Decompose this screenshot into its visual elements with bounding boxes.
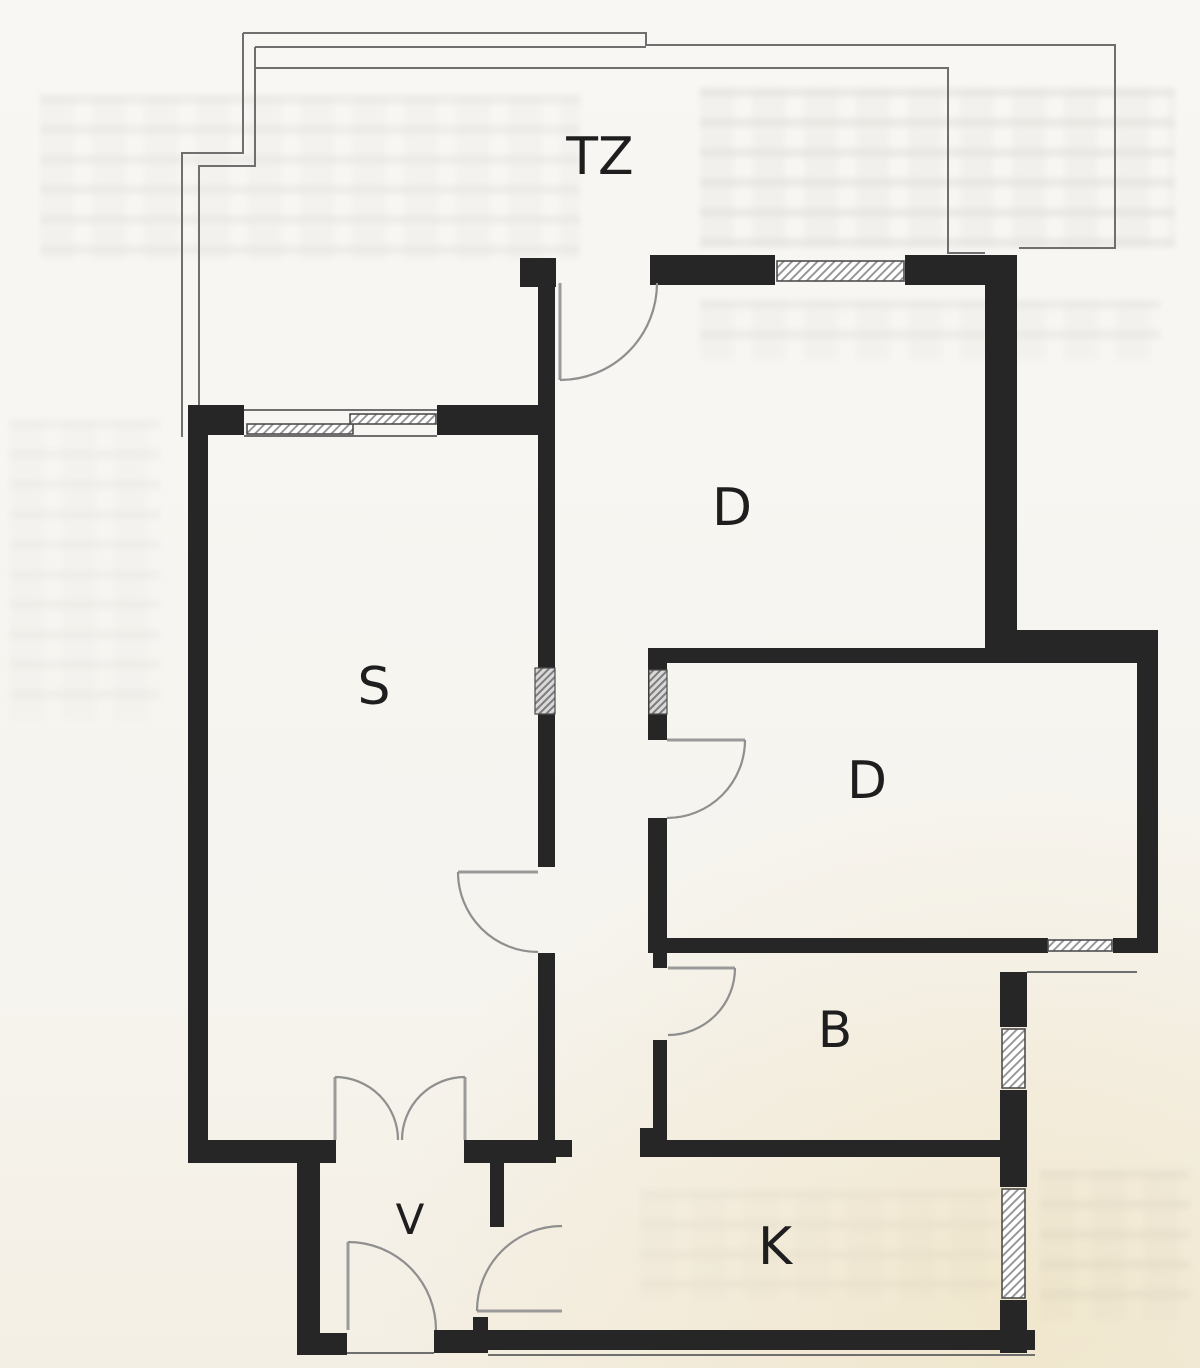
wall-d1-top-left xyxy=(650,255,775,285)
wall-b-k-divider xyxy=(653,1140,1003,1157)
window-s-right-pane xyxy=(350,414,436,424)
door-entry-to-v xyxy=(348,1242,436,1330)
wall-v-bottom-right xyxy=(434,1330,488,1353)
window-d1 xyxy=(777,261,904,281)
room-label-terrace: TZ xyxy=(565,127,633,187)
terrace-outer-line-left xyxy=(182,33,243,437)
wall-d1-right xyxy=(985,255,1017,635)
wall-v-bottom-left xyxy=(297,1333,347,1355)
window-d2 xyxy=(1048,940,1112,951)
floor-plan-drawing: TZ D S D B V K xyxy=(0,0,1200,1368)
wall-d2-left-lower xyxy=(648,818,667,953)
ducts xyxy=(535,668,667,714)
door-swing-arc xyxy=(477,1226,562,1311)
door-swing-arc xyxy=(667,740,745,818)
wall-jog-right xyxy=(985,630,1158,648)
wall-d2-bottom-corner xyxy=(1113,938,1158,953)
wall-bottom-exterior xyxy=(488,1330,1035,1350)
duct-hall-left xyxy=(535,668,555,714)
wall-middle-bottom-return xyxy=(538,1140,572,1157)
door-swing-arc-right xyxy=(402,1077,465,1140)
room-label-v: V xyxy=(396,1195,425,1244)
scanned-page: TZ D S D B V K xyxy=(0,0,1200,1368)
duct-hall-right xyxy=(649,670,667,714)
wall-v-notch xyxy=(473,1317,488,1331)
room-label-b: B xyxy=(818,1001,852,1059)
terrace-outer-line xyxy=(243,33,1115,248)
wall-s-top-right-stub xyxy=(437,405,555,435)
door-swing-arc xyxy=(348,1242,436,1330)
door-swing-arc xyxy=(668,968,735,1035)
door-terrace-to-hall xyxy=(560,283,657,380)
wall-hall-top-stub xyxy=(520,258,556,287)
door-lobby xyxy=(477,1226,562,1311)
wall-d2-bottom xyxy=(648,938,1048,953)
room-label-d1: D xyxy=(712,478,752,538)
wall-b-right-lower xyxy=(1000,1090,1027,1187)
wall-v-left xyxy=(297,1150,320,1340)
terrace-inner-line-left xyxy=(199,47,255,437)
room-label-k: K xyxy=(758,1217,794,1277)
window-k xyxy=(1002,1189,1025,1298)
double-door-v-to-s xyxy=(335,1077,465,1140)
window-b xyxy=(1002,1029,1025,1088)
door-hall-to-b xyxy=(668,968,735,1035)
door-swing-arc xyxy=(458,872,538,952)
door-hall-to-s xyxy=(458,872,538,952)
window-s-left-pane xyxy=(247,424,353,434)
wall-middle-lower xyxy=(538,953,555,1143)
room-label-d2: D xyxy=(847,751,887,811)
terrace-parapet-lines xyxy=(182,33,1115,437)
wall-d2-top xyxy=(648,648,1137,663)
wall-s-top-left-stub xyxy=(188,405,244,435)
wall-right-exterior xyxy=(1137,648,1158,953)
wall-b-left-lower xyxy=(653,1040,667,1140)
wall-b-left-top xyxy=(653,953,667,968)
door-swing-arc-left xyxy=(335,1077,398,1140)
wall-b-right-upper xyxy=(1000,972,1027,1027)
wall-k-right-lower xyxy=(1000,1300,1027,1353)
wall-entry-stub xyxy=(490,1157,504,1227)
door-hall-to-d2 xyxy=(667,740,745,818)
wall-middle-upper xyxy=(538,287,555,867)
door-swing-arc xyxy=(560,283,657,380)
room-label-s: S xyxy=(357,657,390,717)
wall-left-exterior xyxy=(188,433,208,1143)
room-labels: TZ D S D B V K xyxy=(357,127,887,1277)
